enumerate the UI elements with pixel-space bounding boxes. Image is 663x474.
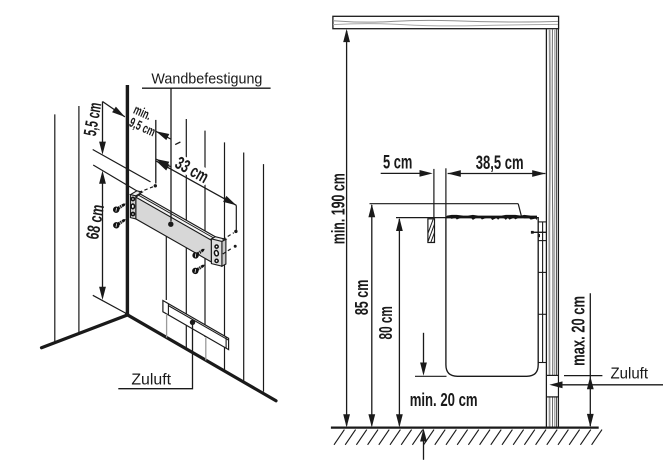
svg-text:Zuluft: Zuluft: [131, 371, 171, 388]
svg-text:85 cm: 85 cm: [351, 280, 372, 316]
svg-text:9,5 cm: 9,5 cm: [127, 115, 158, 140]
svg-text:max. 20 cm: max. 20 cm: [567, 296, 588, 366]
svg-text:68 cm: 68 cm: [82, 203, 108, 241]
svg-text:5,5 cm: 5,5 cm: [80, 101, 106, 137]
svg-text:min. 190 cm: min. 190 cm: [327, 173, 348, 244]
svg-text:Zuluft: Zuluft: [611, 366, 649, 383]
svg-text:Wandbefestigung: Wandbefestigung: [151, 72, 262, 88]
svg-text:80 cm: 80 cm: [375, 306, 396, 339]
svg-text:min. 20 cm: min. 20 cm: [410, 389, 478, 410]
svg-text:38,5 cm: 38,5 cm: [476, 153, 524, 174]
svg-text:5 cm: 5 cm: [383, 153, 412, 174]
